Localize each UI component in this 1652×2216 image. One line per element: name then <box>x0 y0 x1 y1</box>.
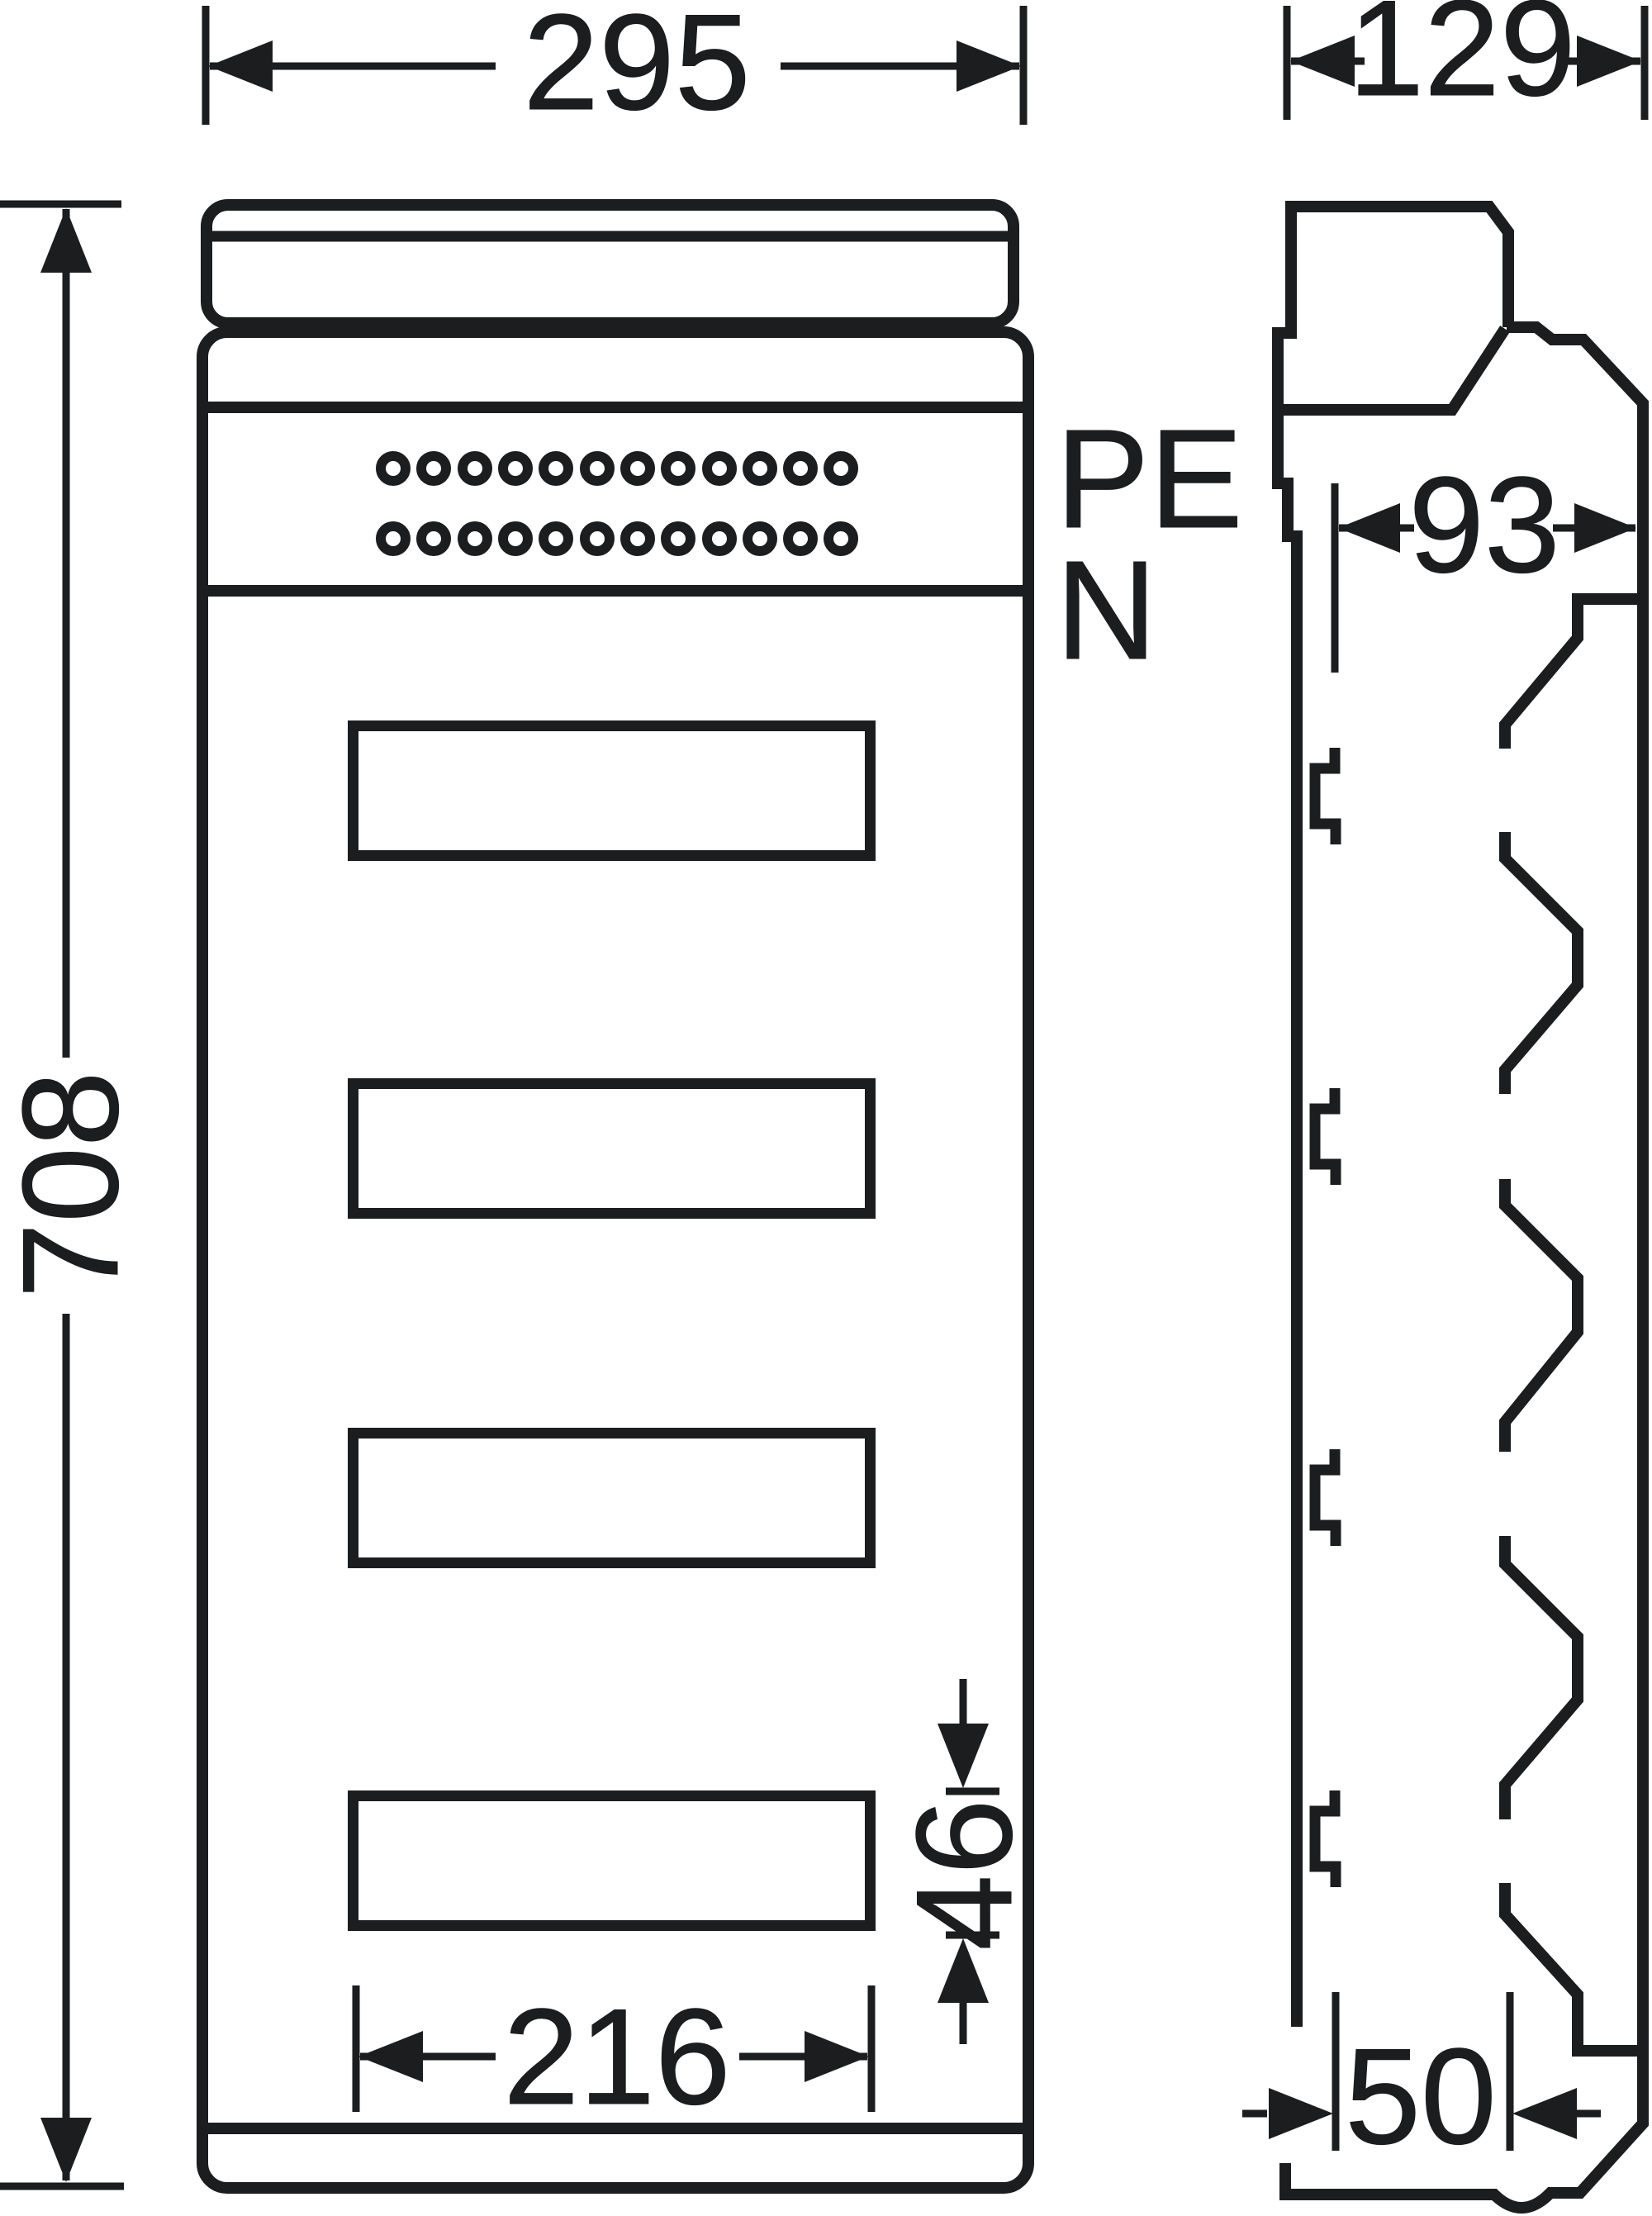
svg-text:708: 708 <box>0 1071 146 1298</box>
svg-text:50: 50 <box>1345 2020 1497 2172</box>
svg-text:216: 216 <box>503 1981 730 2133</box>
svg-text:46: 46 <box>888 1799 1040 1951</box>
svg-text:93: 93 <box>1408 449 1560 601</box>
svg-text:295: 295 <box>523 0 750 138</box>
svg-text:129: 129 <box>1348 0 1575 124</box>
svg-text:N: N <box>1056 532 1157 689</box>
